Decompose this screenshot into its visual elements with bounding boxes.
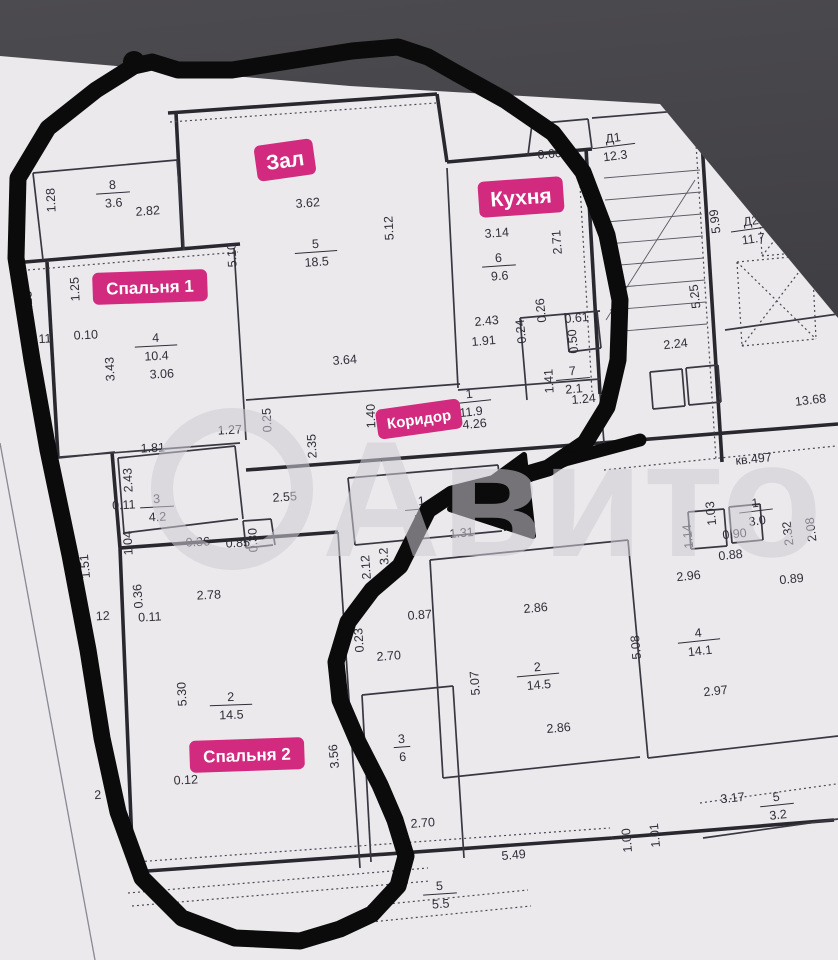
dimension-label: 2.43: [120, 468, 135, 493]
dimension-label: 0.10: [73, 327, 98, 342]
room-area: 14.1: [687, 643, 713, 659]
dimension-label: 2.97: [703, 683, 729, 699]
dimension-label: 5.49: [501, 847, 527, 863]
room-number: 5: [311, 237, 319, 251]
dimension-label: 1.00: [619, 828, 635, 854]
floorplan-canvas: 1.282.823.625.105.120.603.142.71пом.2д4.…: [0, 0, 838, 960]
dimension-label: 3.43: [102, 357, 117, 382]
room-name-chip: Кухня: [477, 176, 564, 218]
dimension-label: 2.86: [523, 600, 549, 616]
dimension-label: 2.70: [376, 648, 401, 664]
room-area: 14.5: [526, 677, 552, 693]
wall-segment: [722, 131, 838, 145]
dimension-label: 1.01: [647, 823, 663, 849]
dimension-label: 0.11: [112, 497, 136, 512]
dimension-label: 5.99: [707, 209, 724, 235]
dimension-label: 2.78: [196, 587, 221, 602]
dimension-label: 1.25: [67, 277, 82, 302]
wall-segment: [757, 165, 834, 172]
dimension-label: 0.36: [130, 584, 146, 609]
dimension-label: 1.04: [120, 531, 135, 556]
dimension-label: 0.87: [407, 607, 432, 623]
dimension-label: 2.71: [549, 230, 565, 255]
room-name-chip: Спальня 1: [92, 269, 208, 305]
dimension-label: 0.50: [565, 329, 581, 355]
dimension-label: 3.14: [484, 225, 509, 241]
room-area: 10.4: [144, 348, 169, 363]
room-number: 7: [568, 364, 576, 379]
room-area: 2.1: [565, 381, 584, 396]
dimension-label: 3.06: [149, 366, 174, 381]
dimension-label: 0.24: [513, 319, 529, 345]
room-area: 9.6: [491, 268, 509, 283]
dimension-label: 2.86: [546, 720, 572, 736]
dimension-label: 2.43: [474, 313, 500, 329]
room-name-chip: Спальня 2: [189, 737, 305, 773]
dimension-label: 2.35: [304, 434, 319, 459]
dimension-label: 1.41: [541, 369, 556, 394]
dimension-label: 0.12: [173, 772, 198, 787]
room-area: 14.5: [219, 708, 244, 723]
dimension-label: 1.28: [43, 188, 58, 213]
dimension-label: 0.26: [533, 298, 549, 324]
dimension-label: 2.70: [410, 815, 435, 831]
room-area: 5.5: [432, 896, 450, 911]
dimension-label: 5.30: [174, 682, 189, 707]
room-name-chip-text: Кухня: [490, 184, 553, 211]
room-area: 3.2: [769, 807, 788, 823]
dimension-label: 3.56: [326, 744, 342, 770]
wall-segment: [834, 165, 838, 249]
dimension-label: 2.24: [663, 336, 689, 352]
room-area: 6: [399, 750, 407, 764]
room-number: 4: [152, 331, 160, 345]
dimension-label: 4.0: [819, 109, 838, 125]
room-area: 12.3: [602, 147, 628, 164]
outline-nub: [123, 51, 145, 73]
room-name-chip-text: Спальня 1: [106, 277, 194, 299]
room-number: 2: [533, 660, 541, 675]
dimension-label: 5.07: [467, 671, 483, 696]
room-number: 6: [494, 251, 502, 265]
watermark-text: Авито: [322, 407, 822, 591]
dimension-label: 2: [94, 788, 102, 802]
dimension-label: 5.12: [381, 216, 396, 241]
room-number: Д1: [605, 130, 622, 146]
dimension-label: 3.64: [332, 352, 357, 368]
room-number: 2: [227, 690, 234, 704]
room-number: 5: [435, 879, 443, 893]
dimension-label: 5.10: [224, 243, 239, 268]
dimension-label: 3.17: [720, 790, 746, 806]
dimension-label: 0.61: [564, 310, 590, 326]
room-name-chip-text: Спальня 2: [203, 745, 291, 767]
dimension-label: 5.25: [687, 284, 704, 310]
room-number: 8: [108, 178, 116, 192]
room-area: 3.6: [105, 195, 123, 210]
dimension-label: 3.62: [295, 195, 320, 211]
dimension-label: 12: [95, 609, 110, 624]
dimension-label: пом.2д: [722, 110, 764, 130]
room-area: 18.5: [304, 254, 329, 270]
room-number: Д2: [742, 213, 759, 229]
dimension-label: 5.08: [628, 635, 644, 661]
dimension-label: 2: [830, 128, 838, 143]
room-number: 3: [397, 732, 405, 746]
dimension-label: 2.82: [135, 203, 160, 219]
floorplan-image: 1.282.823.625.105.120.603.142.71пом.2д4.…: [0, 0, 838, 960]
dimension-label: 1.91: [471, 333, 497, 349]
dimension-label: 0.11: [138, 609, 162, 624]
